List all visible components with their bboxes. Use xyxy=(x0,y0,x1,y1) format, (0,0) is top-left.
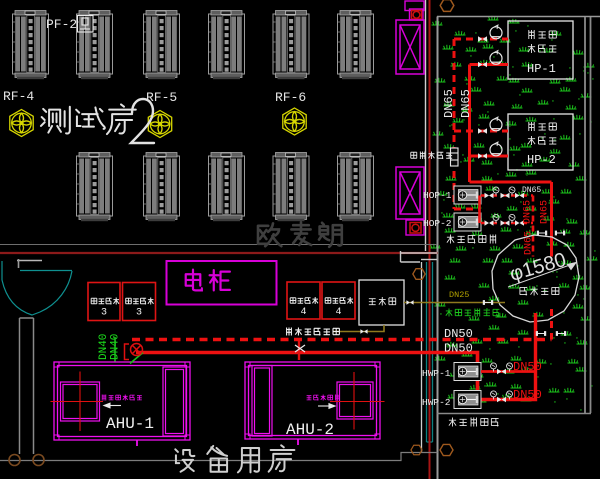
svg-text:4: 4 xyxy=(301,307,307,318)
svg-text:RF-6: RF-6 xyxy=(275,90,306,105)
svg-text:DN65: DN65 xyxy=(459,89,473,118)
svg-text:DN25: DN25 xyxy=(449,290,469,300)
svg-text:3: 3 xyxy=(136,308,142,319)
svg-text:4: 4 xyxy=(336,307,342,318)
svg-text:DN50: DN50 xyxy=(513,388,542,402)
svg-text:PF-2: PF-2 xyxy=(46,17,77,32)
svg-text:HP-1: HP-1 xyxy=(527,62,556,76)
svg-text:DN40: DN40 xyxy=(98,334,110,360)
svg-text:HOP-1: HOP-1 xyxy=(423,190,452,201)
svg-text:DN50: DN50 xyxy=(444,327,473,341)
svg-text:DN65: DN65 xyxy=(523,200,534,224)
svg-text:HOP-2: HOP-2 xyxy=(423,218,452,229)
svg-text:DN50: DN50 xyxy=(513,360,542,374)
svg-text:HWP-1: HWP-1 xyxy=(422,368,451,379)
svg-text:DN65: DN65 xyxy=(442,89,456,118)
svg-text:DN50: DN50 xyxy=(444,342,473,356)
svg-text:RF-4: RF-4 xyxy=(3,89,34,104)
svg-text:AHU-2: AHU-2 xyxy=(286,421,334,439)
svg-text:HP-2: HP-2 xyxy=(527,153,556,167)
svg-text:HWP-2: HWP-2 xyxy=(422,397,451,408)
svg-text:DN65: DN65 xyxy=(540,200,551,224)
svg-text:3: 3 xyxy=(101,308,107,319)
svg-text:DN65: DN65 xyxy=(524,231,535,255)
svg-text:DN65: DN65 xyxy=(522,186,541,195)
svg-text:AHU-1: AHU-1 xyxy=(106,415,154,433)
